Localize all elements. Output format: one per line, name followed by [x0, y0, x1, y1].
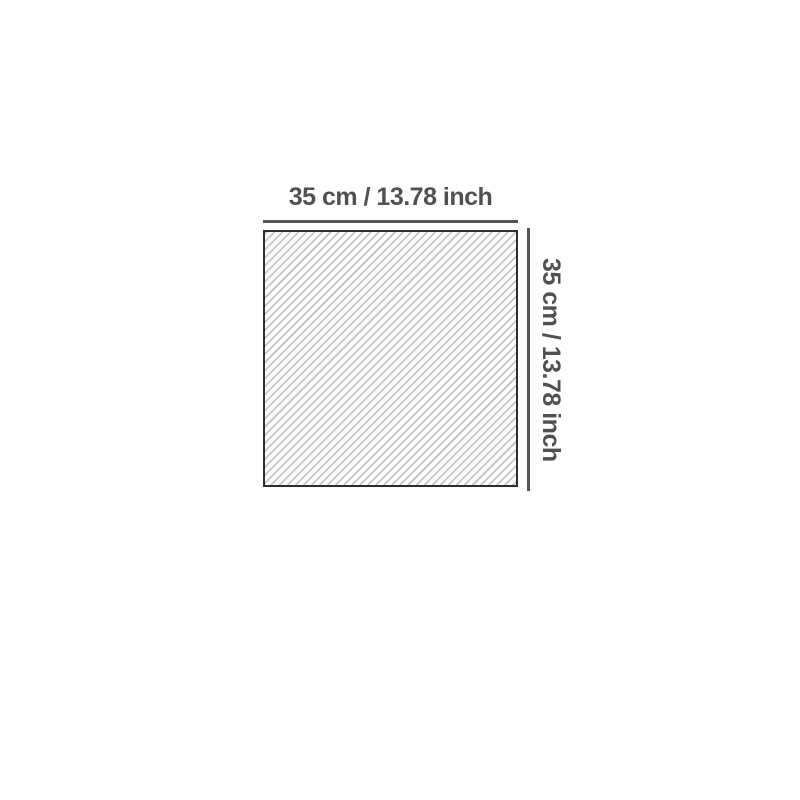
dimension-diagram: 35 cm / 13.78 inch 35 cm / 13.78 inch — [0, 0, 800, 800]
width-dimension-label: 35 cm / 13.78 inch — [238, 183, 543, 212]
width-dimension-line — [263, 220, 518, 223]
hatched-square — [263, 230, 518, 487]
height-dimension-line — [527, 228, 530, 491]
height-dimension-label: 35 cm / 13.78 inch — [536, 228, 565, 491]
